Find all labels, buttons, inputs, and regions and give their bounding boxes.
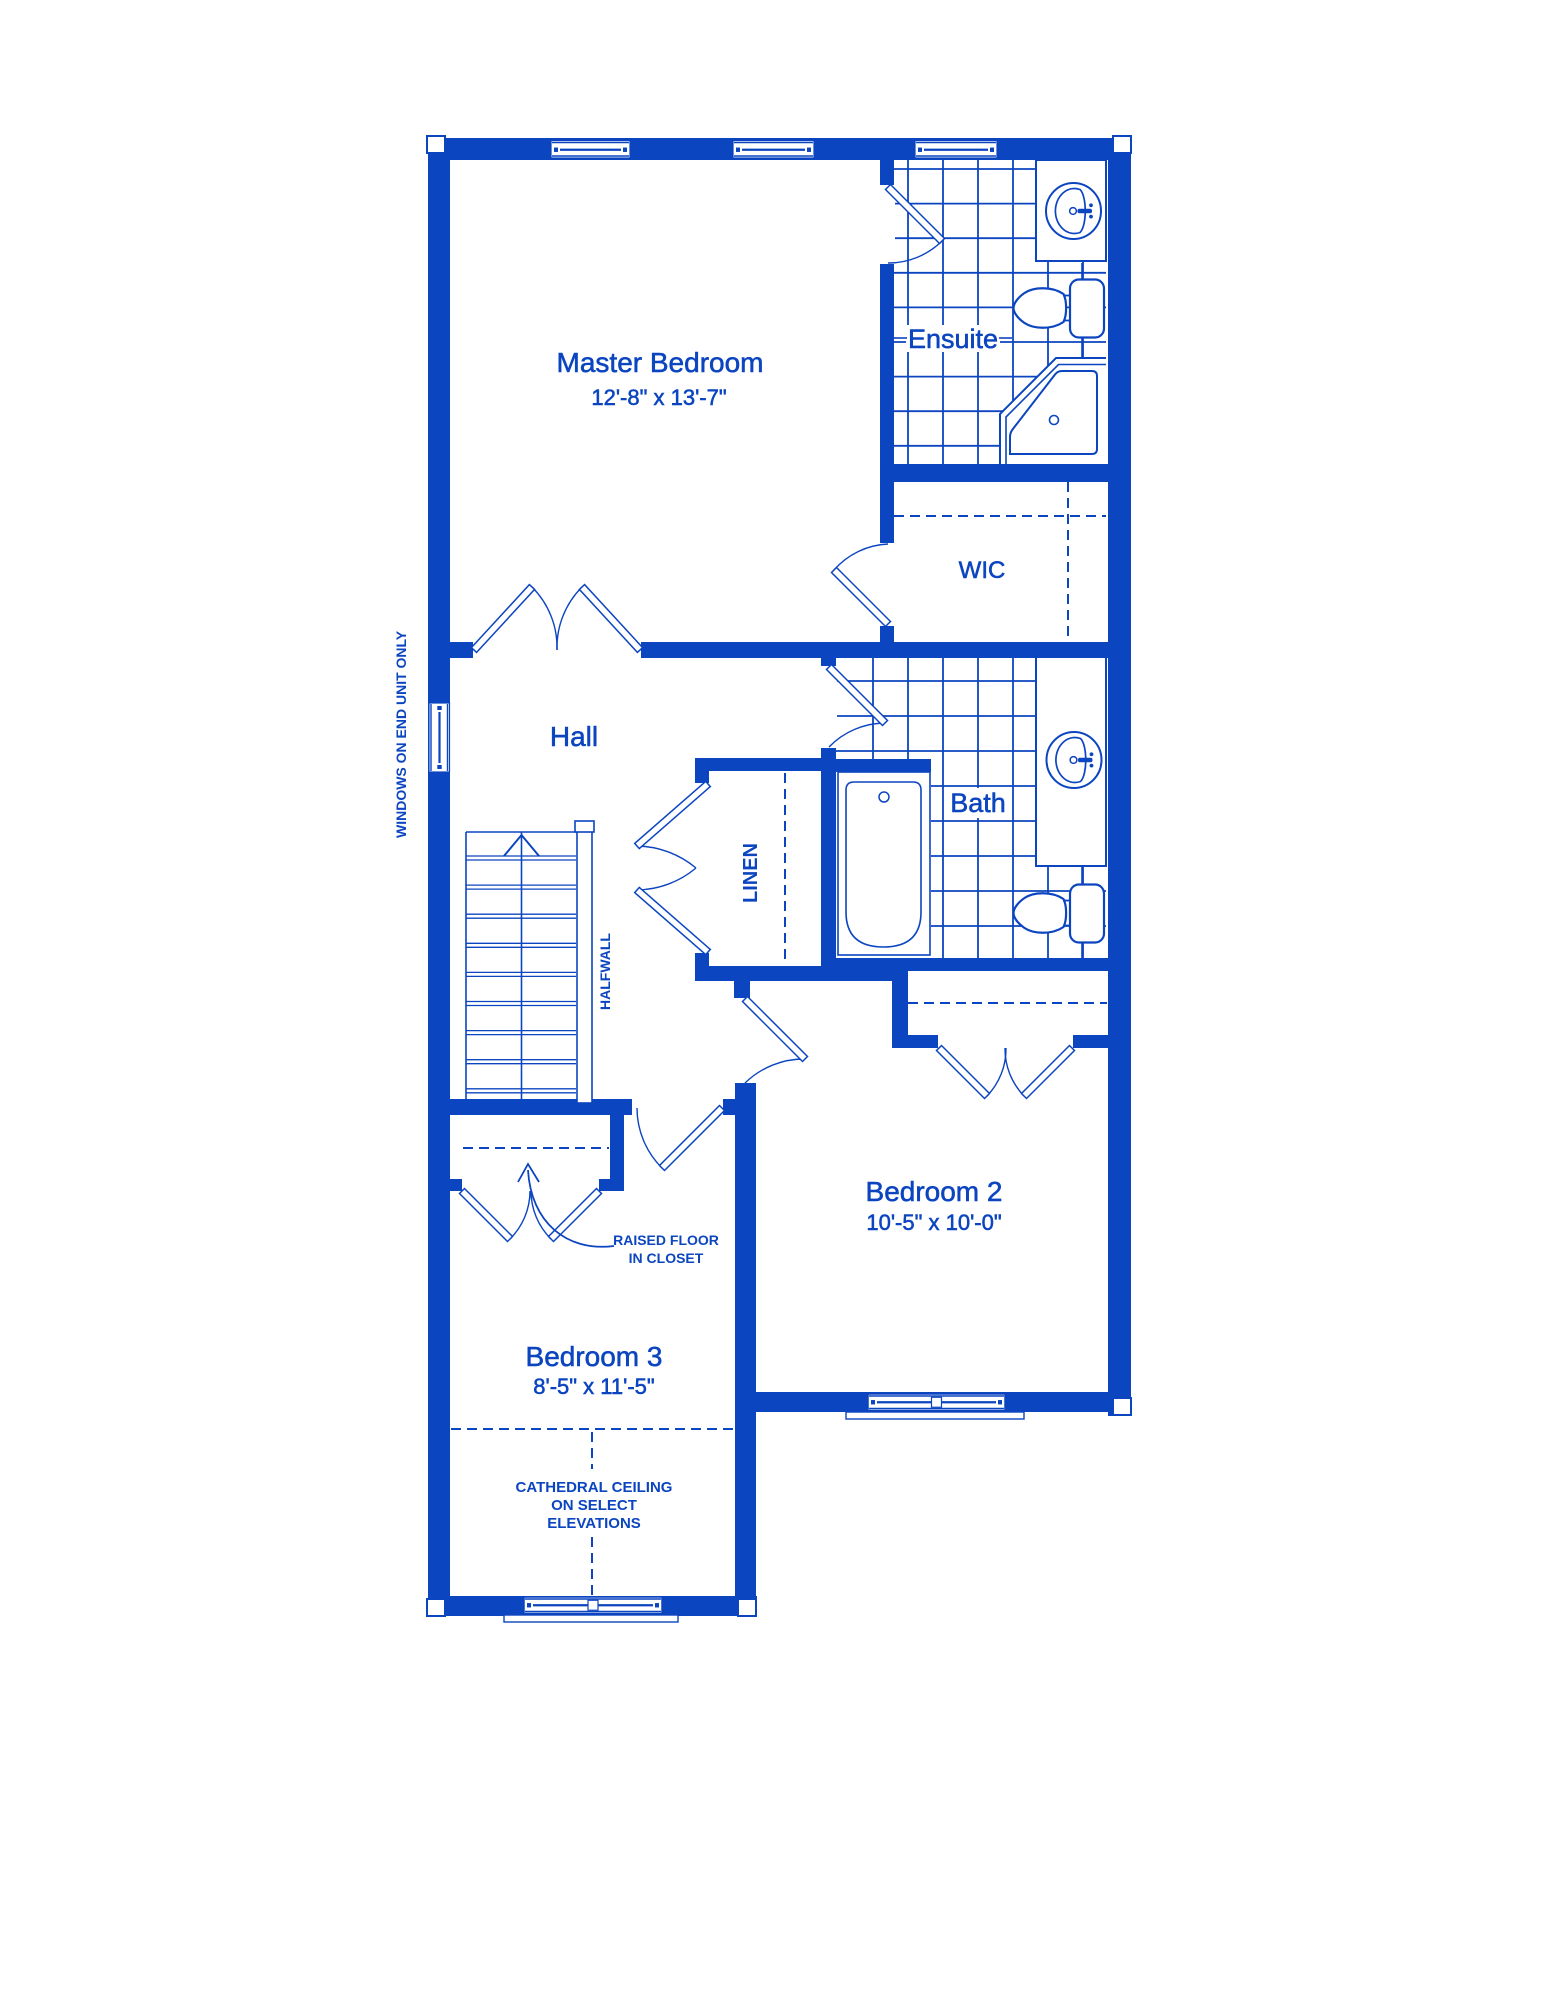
svg-text:CATHEDRAL CEILING: CATHEDRAL CEILING <box>516 1479 673 1496</box>
svg-text:Master Bedroom: Master Bedroom <box>557 347 764 378</box>
svg-text:LINEN: LINEN <box>740 843 762 903</box>
svg-text:ELEVATIONS: ELEVATIONS <box>547 1515 641 1532</box>
svg-text:WIC: WIC <box>959 557 1006 584</box>
svg-text:Bath: Bath <box>950 788 1006 818</box>
svg-text:RAISED FLOOR: RAISED FLOOR <box>613 1232 719 1248</box>
svg-text:Bedroom 3: Bedroom 3 <box>526 1341 663 1372</box>
svg-text:Bedroom 2: Bedroom 2 <box>866 1176 1003 1207</box>
svg-text:Hall: Hall <box>550 721 598 752</box>
svg-text:HALFWALL: HALFWALL <box>597 933 613 1010</box>
svg-text:Ensuite: Ensuite <box>908 324 998 354</box>
svg-text:ON SELECT: ON SELECT <box>551 1497 637 1514</box>
svg-text:12'-8" x 13'-7": 12'-8" x 13'-7" <box>591 385 726 410</box>
svg-text:IN CLOSET: IN CLOSET <box>629 1250 704 1266</box>
svg-text:8'-5" x 11'-5": 8'-5" x 11'-5" <box>533 1374 654 1399</box>
svg-text:10'-5" x 10'-0": 10'-5" x 10'-0" <box>866 1210 1001 1235</box>
svg-text:WINDOWS ON END UNIT ONLY: WINDOWS ON END UNIT ONLY <box>393 630 409 838</box>
